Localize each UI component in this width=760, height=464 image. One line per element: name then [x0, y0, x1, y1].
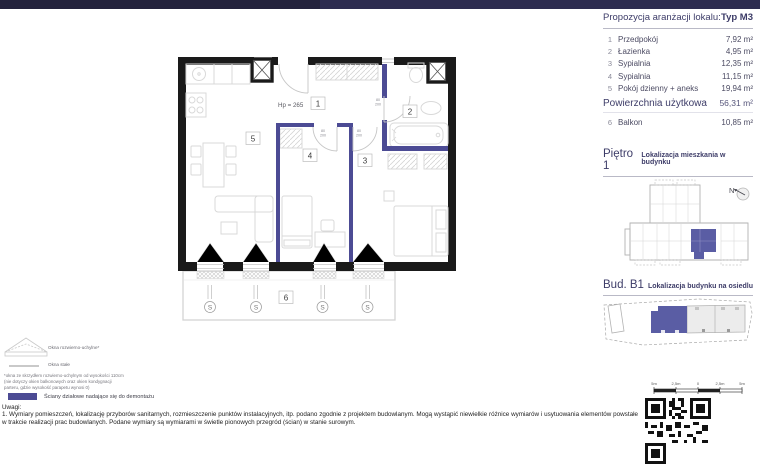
bathtub — [390, 123, 448, 147]
svg-text:2,5m: 2,5m — [716, 381, 726, 386]
bed — [282, 196, 312, 248]
svg-text:80: 80 — [357, 129, 361, 133]
top-bar-left — [0, 0, 320, 9]
top-bar-right — [320, 0, 760, 9]
svg-text:5m: 5m — [739, 381, 745, 386]
svg-text:S: S — [208, 305, 213, 312]
wardrobe — [388, 154, 417, 169]
floor-title: Piętro 1 — [603, 148, 641, 172]
highlighted-building — [651, 306, 687, 333]
washbasin — [421, 102, 441, 115]
dining-set — [191, 143, 236, 187]
svg-text:3: 3 — [363, 157, 368, 166]
table-header: Propozycja aranżacji lokalu: Typ M3 — [603, 12, 753, 29]
bed — [384, 191, 448, 256]
svg-text:4: 4 — [308, 152, 313, 161]
svg-text:80: 80 — [376, 98, 380, 102]
svg-text:S: S — [254, 305, 259, 312]
tilt-turn-window-icon — [4, 334, 48, 360]
notes-block: Uwagi: 1. Wymiary pomieszczeń, lokalizac… — [2, 404, 638, 426]
table-row: 2 Łazienka 4,95 m² — [603, 45, 753, 57]
estate-locator-section: Bud. B1 Lokalizacja budynku na osiedlu 5… — [603, 279, 753, 403]
svg-text:200: 200 — [320, 134, 326, 138]
svg-text:200: 200 — [375, 103, 381, 107]
brochure-page: { "table": { "title": "Propozycja aranża… — [0, 0, 760, 428]
section-header: Bud. B1 Lokalizacja budynku na osiedlu — [603, 279, 753, 296]
legend-fixed-windows-label: Okna stałe — [48, 362, 70, 367]
kitchen-counter — [186, 64, 250, 84]
wardrobe — [316, 64, 378, 80]
svg-text:S: S — [365, 305, 370, 312]
table-row: 1 Przedpokój 7,92 m² — [603, 33, 753, 45]
svg-text:80: 80 — [321, 129, 325, 133]
qr-code — [645, 398, 711, 464]
legend-footnote: *okna ze skrzydłem rozwierno-uchylnym od… — [4, 373, 126, 391]
thin-wall — [382, 59, 394, 63]
svg-text:N: N — [729, 186, 734, 195]
building-outline — [625, 185, 748, 260]
building-floor-minimap: N — [603, 179, 753, 289]
unit-area-table: Propozycja aranżacji lokalu: Typ M3 1 Pr… — [603, 12, 753, 128]
svg-text:6: 6 — [284, 294, 289, 303]
floor-subtitle: Lokalizacja mieszkania w budynku — [641, 152, 753, 166]
unit-type-badge: Typ M3 — [721, 12, 753, 23]
table-row: 4 Sypialnia 11,15 m² — [603, 70, 753, 82]
usable-area-total: Powierzchnia użytkowa 56,31 m² — [603, 98, 753, 113]
notes-heading: Uwagi: — [2, 404, 638, 411]
apartment-floor-plan: 80 200 80 200 80 200 — [165, 45, 485, 345]
table-title: Propozycja aranżacji lokalu: — [603, 12, 721, 23]
svg-text:5: 5 — [251, 135, 256, 144]
desk — [315, 220, 345, 247]
scale-bar: 5m 2,5m 0 2,5m 5m — [647, 380, 751, 398]
building-subtitle: Lokalizacja budynku na osiedlu — [648, 283, 753, 290]
shaft-icon — [252, 59, 272, 81]
legend-tilt-windows-label: Okna rozwierno-uchylne* — [48, 345, 99, 350]
legend-demolition-walls-label: Ściany działowe nadające się do demontaż… — [44, 394, 154, 400]
fixed-window-icon — [9, 365, 39, 367]
svg-text:1: 1 — [316, 100, 321, 109]
highlighted-unit — [691, 229, 716, 259]
stove — [186, 93, 206, 117]
floor-locator-section: Piętro 1 Lokalizacja mieszkania w budynk… — [603, 148, 753, 289]
sofa — [215, 196, 273, 242]
building-row — [687, 305, 745, 333]
compass-icon: N — [729, 186, 749, 200]
svg-text:0: 0 — [697, 381, 700, 386]
interior-lines — [630, 185, 748, 260]
neighbor-building — [608, 304, 624, 333]
table-row-balcony: 6 Balkon 10,85 m² — [603, 116, 753, 128]
parapet-height-label: Hp = 265 — [278, 102, 304, 109]
svg-text:5m: 5m — [651, 381, 657, 386]
table-row: 5 Pokój dzienny + aneks 19,94 m² — [603, 83, 753, 95]
wardrobe — [424, 154, 447, 169]
svg-text:2: 2 — [408, 108, 413, 117]
shaft-icon — [428, 61, 447, 82]
notes-body: 1. Wymiary pomieszczeń, lokalizację przy… — [2, 411, 638, 426]
section-header: Piętro 1 Lokalizacja mieszkania w budynk… — [603, 148, 753, 177]
demolition-wall-swatch — [8, 393, 37, 400]
table-row: 3 Sypialnia 12,35 m² — [603, 58, 753, 70]
toilet — [408, 63, 424, 83]
building-title: Bud. B1 — [603, 279, 644, 291]
svg-text:S: S — [320, 305, 325, 312]
wardrobe — [280, 129, 302, 148]
svg-text:2,5m: 2,5m — [672, 381, 682, 386]
estate-site-minimap — [603, 298, 753, 352]
svg-text:200: 200 — [356, 134, 362, 138]
